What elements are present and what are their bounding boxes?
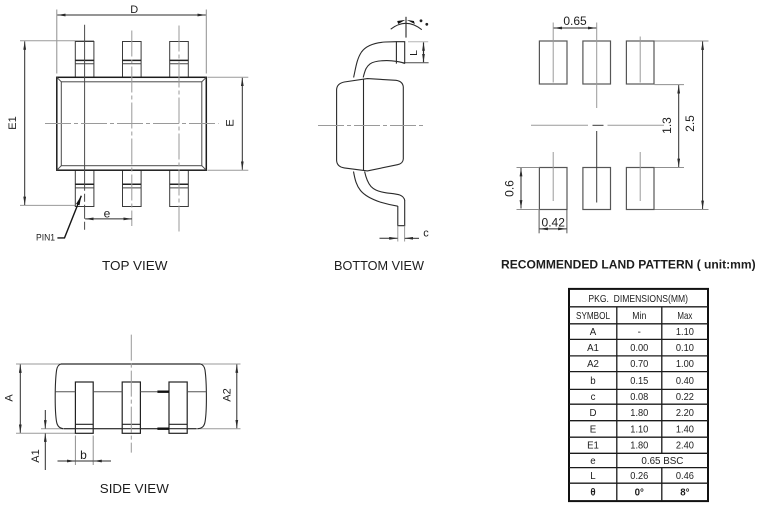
svg-text:E1: E1 (7, 116, 19, 129)
svg-text:A1: A1 (587, 343, 599, 354)
svg-text:θ: θ (590, 488, 595, 499)
svg-text:L: L (590, 471, 596, 482)
svg-text:E1: E1 (587, 441, 599, 452)
svg-text:1.80: 1.80 (630, 408, 649, 419)
svg-text:D: D (590, 408, 597, 419)
svg-text:c: c (423, 228, 429, 240)
svg-text:L: L (408, 50, 420, 56)
svg-text:8°: 8° (680, 488, 689, 499)
svg-text:D: D (130, 4, 138, 16)
svg-text:SYMBOL: SYMBOL (576, 311, 611, 322)
svg-text:e: e (104, 207, 111, 221)
svg-text:0.10: 0.10 (676, 343, 695, 354)
svg-text:0.15: 0.15 (630, 376, 648, 387)
svg-text:0°: 0° (635, 488, 644, 499)
svg-text:0.22: 0.22 (676, 392, 694, 403)
svg-text:0.65 BSC: 0.65 BSC (641, 456, 683, 467)
svg-text:Max: Max (677, 311, 692, 322)
svg-text:1.10: 1.10 (630, 424, 649, 435)
svg-text:1.80: 1.80 (630, 441, 649, 452)
svg-text:PKG. DIMENSIONS(MM): PKG. DIMENSIONS(MM) (588, 294, 688, 305)
svg-text:BOTTOM VIEW: BOTTOM VIEW (334, 259, 424, 273)
svg-text:0.70: 0.70 (630, 359, 649, 370)
svg-text:A: A (590, 327, 597, 338)
svg-text:0.40: 0.40 (676, 376, 695, 387)
svg-text:2.5: 2.5 (683, 115, 697, 132)
svg-text:0.42: 0.42 (542, 215, 566, 229)
svg-text:c: c (591, 392, 596, 403)
svg-text:2.40: 2.40 (676, 441, 695, 452)
svg-text:A1: A1 (30, 449, 42, 462)
svg-text:1.00: 1.00 (676, 359, 695, 370)
svg-text:1.3: 1.3 (660, 117, 674, 134)
svg-text:PIN1: PIN1 (36, 232, 55, 242)
svg-text:1.40: 1.40 (676, 424, 695, 435)
svg-text:b: b (590, 376, 595, 387)
svg-text:1.10: 1.10 (676, 327, 695, 338)
svg-text:0.6: 0.6 (503, 180, 517, 197)
svg-text:0.26: 0.26 (630, 471, 648, 482)
svg-text:RECOMMENDED LAND PATTERN ( uni: RECOMMENDED LAND PATTERN ( unit:mm) (501, 259, 756, 272)
svg-text:TOP VIEW: TOP VIEW (102, 259, 168, 273)
svg-text:0.65: 0.65 (563, 14, 587, 28)
svg-text:E: E (590, 424, 597, 435)
svg-text:A: A (3, 394, 15, 402)
svg-text:e: e (590, 456, 595, 467)
svg-text:2.20: 2.20 (676, 408, 695, 419)
svg-text:0.00: 0.00 (630, 343, 649, 354)
svg-text:b: b (80, 448, 87, 462)
svg-text:E: E (225, 119, 237, 126)
svg-text:Min: Min (632, 311, 646, 322)
svg-text:A2: A2 (587, 359, 599, 370)
svg-text:A2: A2 (222, 388, 234, 401)
svg-text:-: - (638, 327, 641, 338)
svg-text:0.46: 0.46 (676, 471, 694, 482)
svg-text:0.08: 0.08 (630, 392, 648, 403)
svg-text:SIDE VIEW: SIDE VIEW (100, 482, 169, 496)
